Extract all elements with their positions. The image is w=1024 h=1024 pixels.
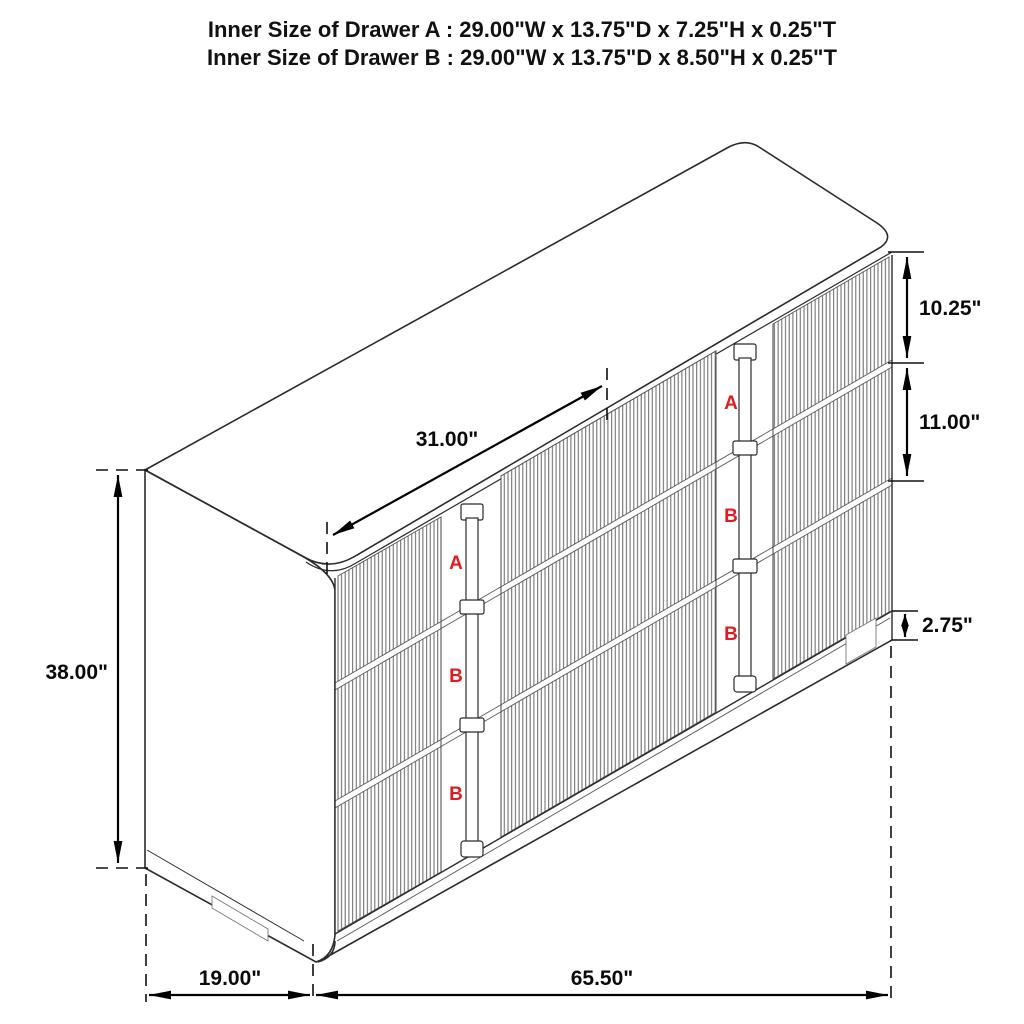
- handle-right-bar: [739, 358, 751, 684]
- handle-left-bar: [466, 518, 478, 848]
- drawer-letter-left-a: A: [449, 553, 463, 574]
- dim-height-label: 38.00": [45, 661, 108, 684]
- dim-overall-height: 38.00": [45, 470, 154, 868]
- flutes-right: [773, 257, 889, 679]
- dim-drawer-heights: 10.25" 11.00": [888, 252, 982, 481]
- title-line-2: Inner Size of Drawer B : 29.00"W x 13.75…: [207, 45, 837, 70]
- handle-right-joint-2: [733, 559, 757, 573]
- side-base-notch: [212, 896, 268, 941]
- handle-left-joint-2: [460, 718, 484, 732]
- title-line-1: Inner Size of Drawer A : 29.00"W x 13.75…: [208, 17, 837, 42]
- drawer-letter-right-a: A: [724, 393, 738, 414]
- side-panel-bottom-edge: [147, 850, 304, 941]
- dim-width-label: 65.50": [571, 967, 634, 990]
- handle-right-bottom-cap: [734, 676, 756, 692]
- dim-drawer-a-label: 10.25": [919, 297, 982, 320]
- dim-drawer-b-label: 11.00": [919, 411, 980, 434]
- dimension-diagram-page: A B B A B B 31.00" 10.25" 11.00" 2.75": [0, 0, 1024, 1024]
- handle-left-joint-1: [460, 600, 484, 614]
- handle-right-joint-1: [733, 441, 757, 455]
- dim-depth-label: 19.00": [199, 967, 262, 990]
- sideboard-dimension-diagram: A B B A B B 31.00" 10.25" 11.00" 2.75": [0, 0, 1024, 1024]
- drawer-letter-right-b2: B: [724, 624, 738, 645]
- title-block: Inner Size of Drawer A : 29.00"W x 13.75…: [207, 17, 837, 70]
- fluted-drawer-fronts: [338, 257, 889, 931]
- drawer-letter-left-b2: B: [449, 784, 463, 805]
- dim-drawer-width-label: 31.00": [416, 428, 479, 451]
- cabinet-side-panel: [145, 470, 335, 962]
- dim-base-label: 2.75": [922, 614, 973, 637]
- flutes-left: [338, 517, 441, 931]
- drawer-letter-left-b1: B: [449, 666, 463, 687]
- cabinet-drawing: A B B A B B: [145, 143, 892, 962]
- dim-base-height: 2.75": [892, 611, 973, 640]
- drawer-letter-right-b1: B: [724, 506, 738, 527]
- handle-left-bottom-cap: [461, 841, 483, 857]
